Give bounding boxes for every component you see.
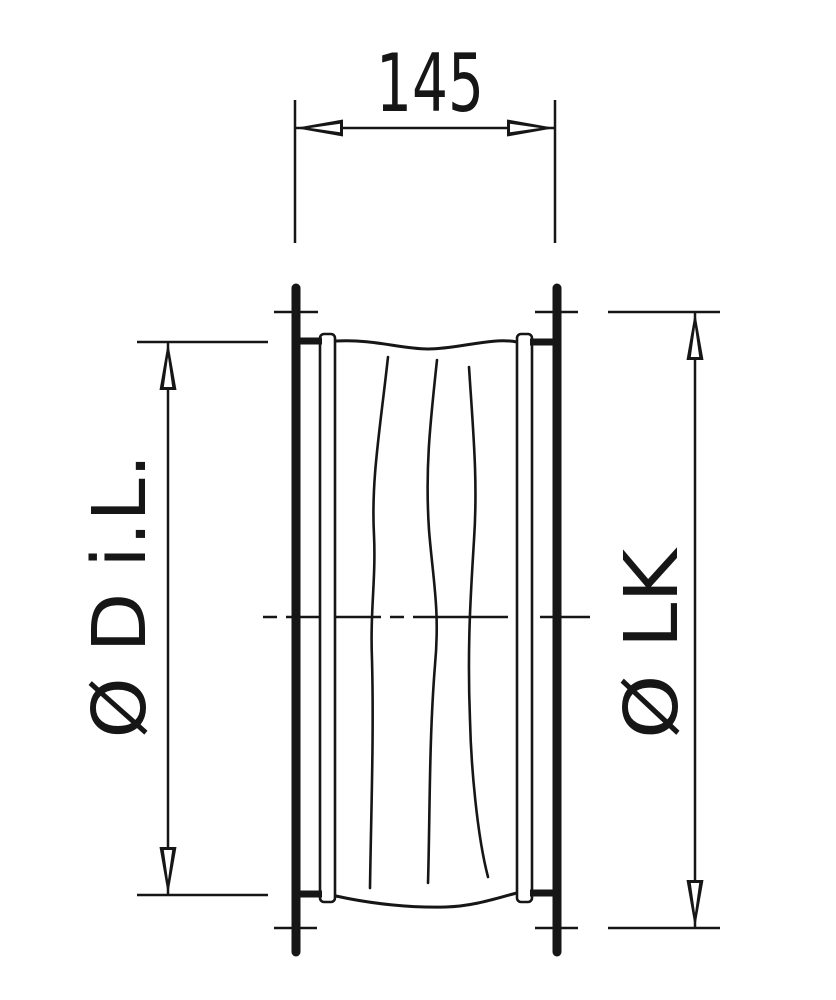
dimension-inner-diameter: Ø D i.L. [77,342,268,895]
arrowhead-up [160,342,177,390]
dimension-value-width: 145 [376,37,484,130]
arrowhead-down [687,880,704,928]
dimension-width-145: 145 [295,37,555,243]
clamp-bar-left [320,334,335,902]
arrowhead-up [687,312,704,360]
fabric-fold-line-1 [370,357,388,888]
technical-drawing: 145 Ø D i.L. Ø LK [0,0,836,1000]
arrowhead-left [295,120,343,137]
arrowhead-right [507,120,555,137]
drawing-sheet: 145 Ø D i.L. Ø LK [0,0,836,1000]
fabric-bottom-edge [336,893,517,907]
dimension-bolt-circle: Ø LK [274,312,720,928]
dimension-label-inner-diameter: Ø D i.L. [77,454,163,739]
connector-body [263,288,590,952]
clamp-bar-right [517,334,532,902]
fabric-fold-line-3 [469,367,488,877]
dimension-label-bolt-circle: Ø LK [609,546,695,739]
fabric-fold-line-2 [428,360,437,883]
arrowhead-down [160,847,177,895]
fabric-top-edge [336,341,517,349]
